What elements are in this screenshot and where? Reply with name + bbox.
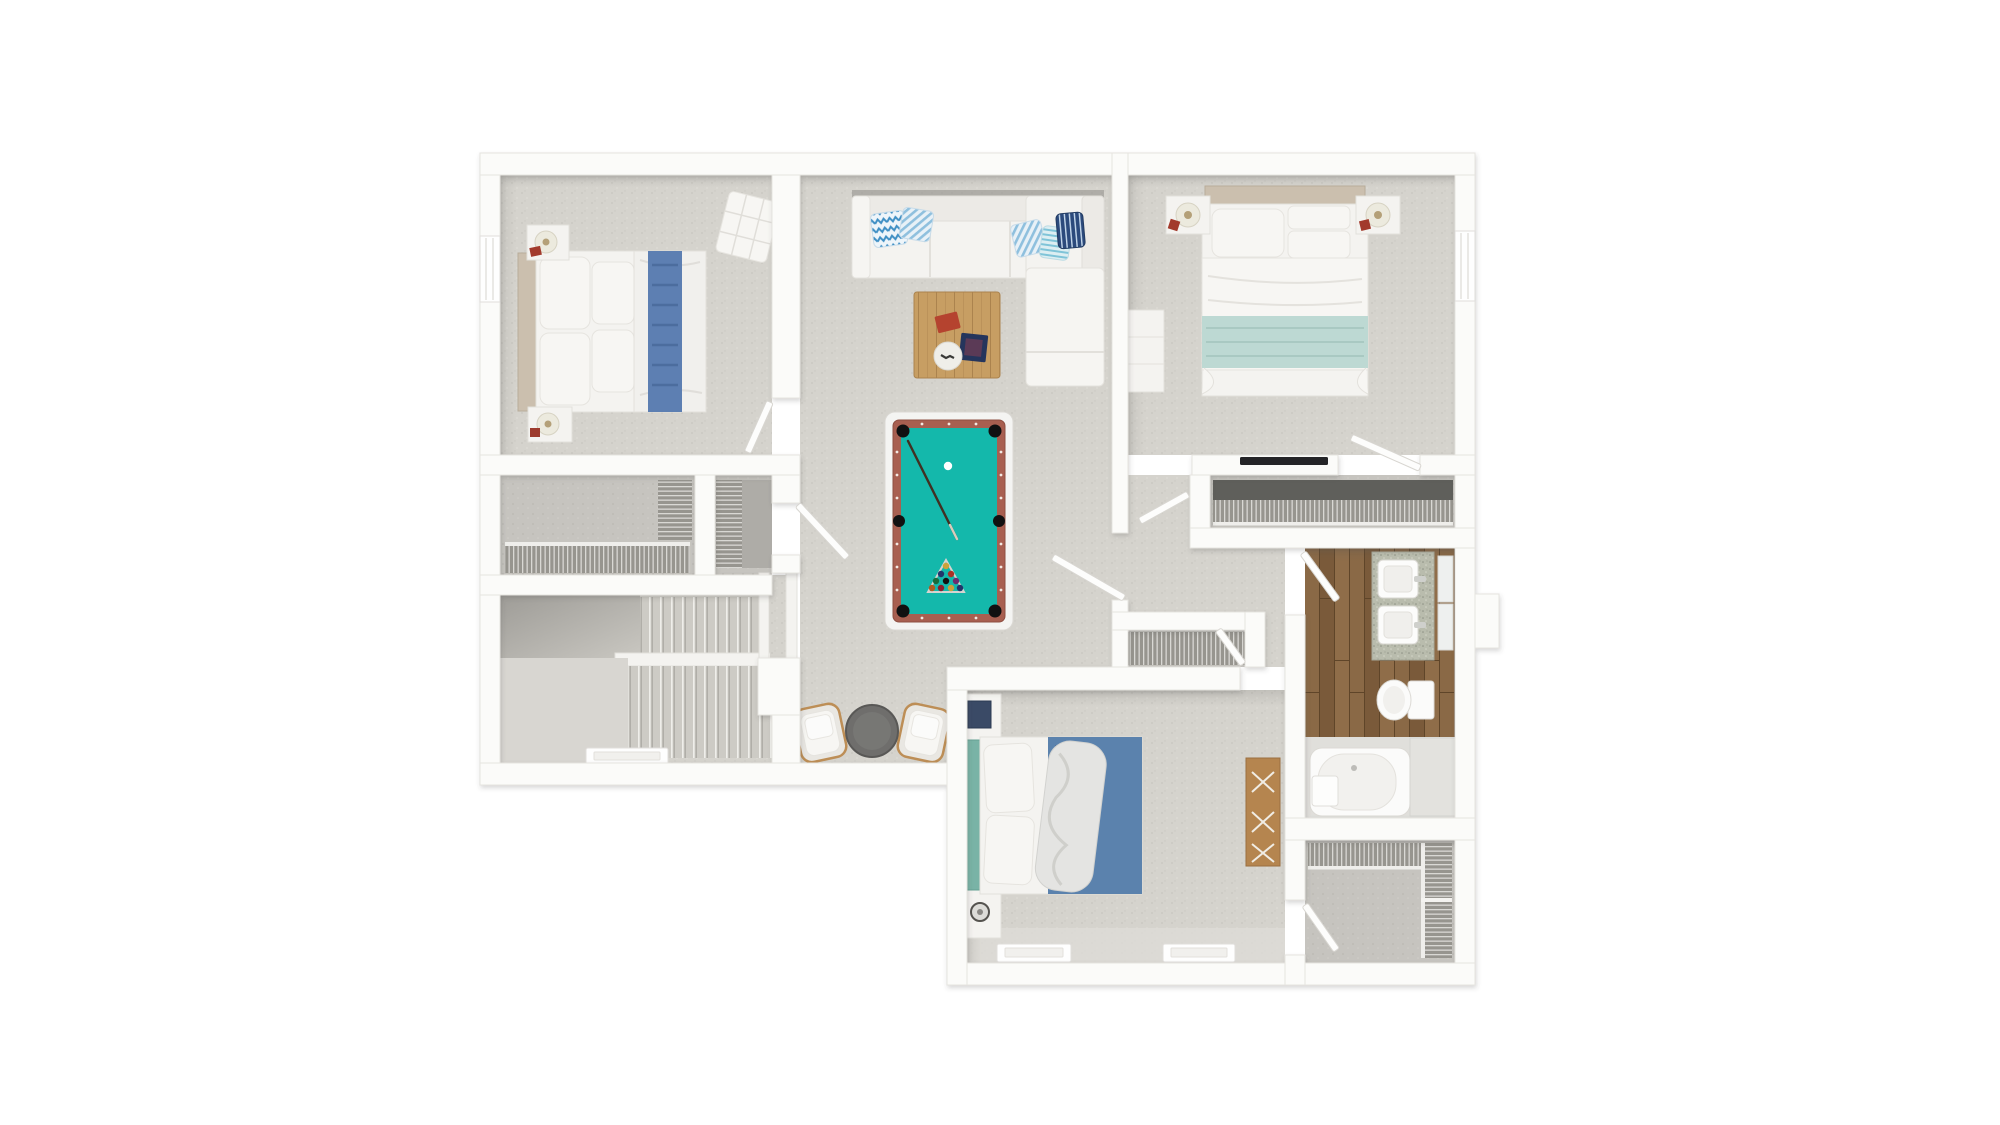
wall-bottom <box>967 963 1475 985</box>
pocket <box>989 605 1002 618</box>
wall-bathroom-left-lower <box>1285 955 1305 985</box>
pillow-navy <box>1056 212 1086 249</box>
bathtub-drain <box>1351 765 1357 771</box>
stair-rail-right <box>786 573 797 660</box>
sofa-chaise <box>1026 268 1104 386</box>
walkin-top-shelf-edge <box>1308 866 1424 870</box>
bed2-headboard <box>1205 186 1365 206</box>
pocket <box>897 425 910 438</box>
stair-handrail <box>615 653 772 666</box>
vanity-sink-top-basin <box>1384 566 1412 592</box>
bed1-pillow <box>540 333 590 405</box>
shadow <box>967 690 1285 706</box>
pocket <box>893 515 905 527</box>
stair-lower-flight <box>628 666 772 758</box>
cue-ball <box>944 462 952 470</box>
mirror-bottom <box>1438 604 1453 650</box>
wall-nook-left <box>772 715 800 763</box>
master-closet-rod-shadow <box>1213 480 1453 500</box>
wall-top <box>480 153 1475 175</box>
master-dresser <box>1128 310 1164 392</box>
sitting-nook-furniture <box>792 702 952 764</box>
bed2-pillow-right-bottom <box>1288 231 1350 258</box>
wall-bed1-bottom <box>480 455 800 475</box>
window-master <box>1455 231 1475 301</box>
faucet-top <box>1414 576 1426 582</box>
staircase <box>500 573 797 765</box>
wall-master-bottom-b <box>1420 455 1475 475</box>
closet-a-wire-shelf <box>505 545 690 573</box>
nook-round-table-top <box>853 712 891 750</box>
coffee-table-book-navy-inner <box>964 338 983 357</box>
wall-bottom-left <box>480 763 967 785</box>
pocket <box>989 425 1002 438</box>
mirror-top <box>1438 556 1453 602</box>
wall-stub-closet-b <box>772 555 800 573</box>
bathtub-platform <box>1410 738 1455 816</box>
floor-plan-canvas <box>0 0 2000 1125</box>
bed1-pillow <box>540 257 590 329</box>
armchair-pillow <box>910 714 940 741</box>
master-closet-shelf-edge <box>1213 522 1453 526</box>
bed2-pillow-right-top <box>1288 206 1350 229</box>
closet-b-dark-interior <box>742 480 772 568</box>
walkin-shelf-divider <box>1421 898 1452 902</box>
bed3-dresser <box>1246 758 1280 866</box>
master-wall-tv <box>1240 457 1328 465</box>
window-bedroom-top-left <box>480 236 500 302</box>
wall-bathroom-left <box>1285 615 1305 900</box>
stair-top-landing <box>770 575 788 659</box>
bed2-pillow-left <box>1212 209 1284 257</box>
bed3-pillow-bottom <box>983 815 1034 885</box>
bed3-pillow-top <box>983 743 1034 813</box>
bed2-lamp-left-center <box>1184 211 1192 219</box>
wall-linen-closet-top <box>1112 612 1265 630</box>
wall-game-hall-lower <box>1112 600 1128 667</box>
wall-bed1-right-upper <box>772 175 800 398</box>
wall-master-closet-left <box>1190 475 1210 528</box>
toilet-seat <box>1383 686 1405 714</box>
vanity-sink-bottom-basin <box>1384 612 1412 638</box>
bed1-pillow <box>592 330 634 392</box>
wall-nook-block <box>758 658 800 715</box>
bed1-lamp-center <box>543 239 550 246</box>
shadow <box>500 170 516 457</box>
hallway-corner-floor <box>1265 612 1285 667</box>
wall-closets-bottom <box>480 575 772 595</box>
wall-bathroom-bottom <box>1285 818 1475 840</box>
wall-master-closet-bottom <box>1190 528 1475 548</box>
wall-linen-closet-right <box>1245 612 1265 667</box>
pocket <box>993 515 1005 527</box>
closet-a-side-shelf <box>658 480 692 540</box>
nook-armchair-left <box>792 702 848 764</box>
wall-closet-divider <box>695 475 715 575</box>
bed3-window-sill-left-inner <box>1005 948 1063 957</box>
bed1-pillow <box>592 262 634 324</box>
stair-void <box>500 595 640 658</box>
bed3-headphones-pad <box>977 909 983 915</box>
stair-upper-flight <box>640 597 772 655</box>
stairwell-window-sill-inner <box>594 752 660 760</box>
bed1-mug <box>530 428 540 437</box>
bed3-radio <box>968 701 991 728</box>
bed3-window-sill-right-inner <box>1171 948 1227 957</box>
master-closet-wire-shelf <box>1213 500 1453 524</box>
bathtub-faucet-deck <box>1312 776 1338 806</box>
wall-bed3-left <box>947 690 967 985</box>
bed1-headboard <box>518 253 536 411</box>
sofa-left-arm <box>852 196 870 278</box>
faucet-bottom <box>1414 622 1426 628</box>
wall-bed1-right-mid <box>772 475 800 503</box>
wall-living-master <box>1112 153 1128 533</box>
bed2-lamp-right-center <box>1374 211 1382 219</box>
wall-right-notch <box>1475 594 1499 648</box>
closet-a-shelf-edge <box>505 542 690 546</box>
pillow-striped-light <box>898 207 934 243</box>
wall-bed3-top <box>947 667 1240 690</box>
walkin-top-wire-shelf <box>1308 843 1424 868</box>
nook-armchair-right <box>896 702 952 764</box>
bed1-blue-throw <box>648 251 682 412</box>
closet-b-wire-shelf <box>716 480 742 568</box>
pool-table <box>885 412 1013 630</box>
floor-plan-render <box>0 0 2000 1125</box>
toilet-tank <box>1408 681 1434 719</box>
armchair-pillow <box>804 714 834 741</box>
bed1-lamp-2-center <box>545 421 552 428</box>
pocket <box>897 605 910 618</box>
